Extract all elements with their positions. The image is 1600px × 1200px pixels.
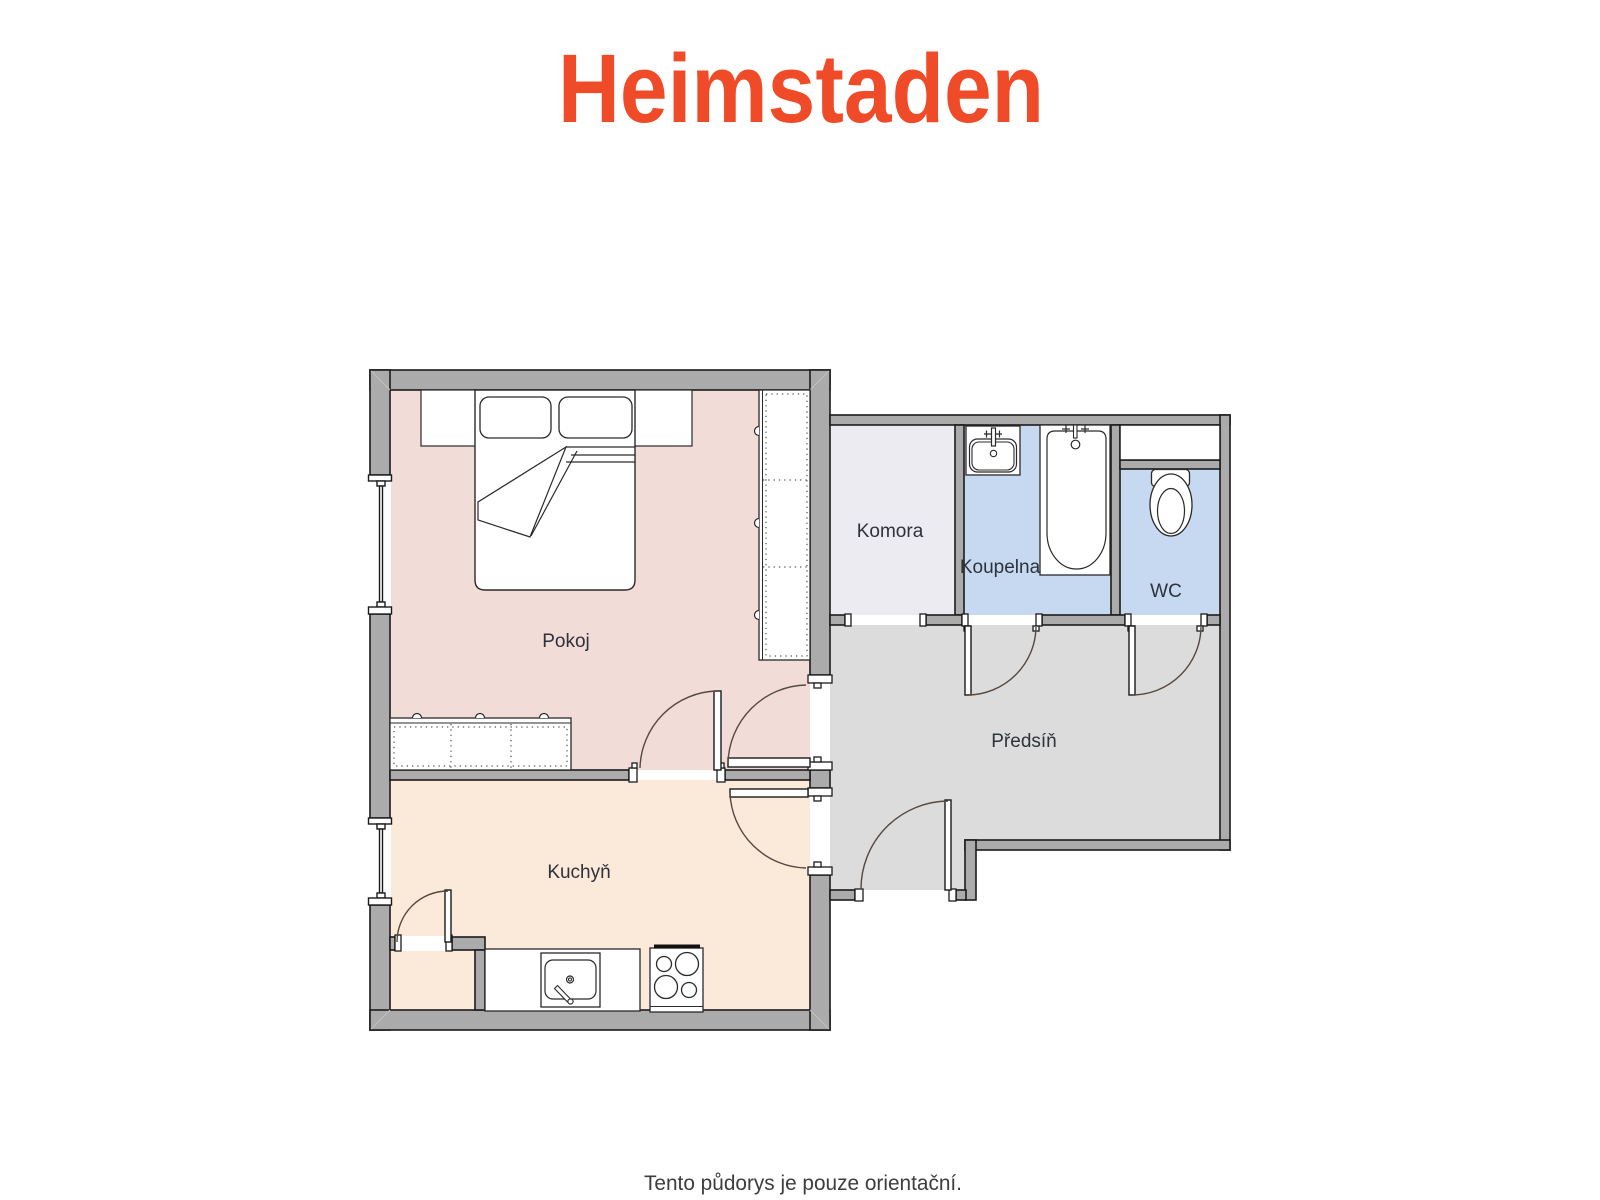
svg-text:Komora: Komora [857, 521, 924, 542]
svg-text:Pokoj: Pokoj [542, 631, 590, 652]
svg-text:WC: WC [1150, 581, 1182, 602]
svg-text:Heimstaden: Heimstaden [558, 34, 1044, 143]
svg-text:Tento půdorys je pouze orienta: Tento půdorys je pouze orientační. [644, 1172, 962, 1195]
svg-text:Koupelna: Koupelna [960, 557, 1041, 578]
svg-text:Předsíň: Předsíň [991, 731, 1056, 752]
svg-text:Kuchyň: Kuchyň [547, 862, 610, 883]
